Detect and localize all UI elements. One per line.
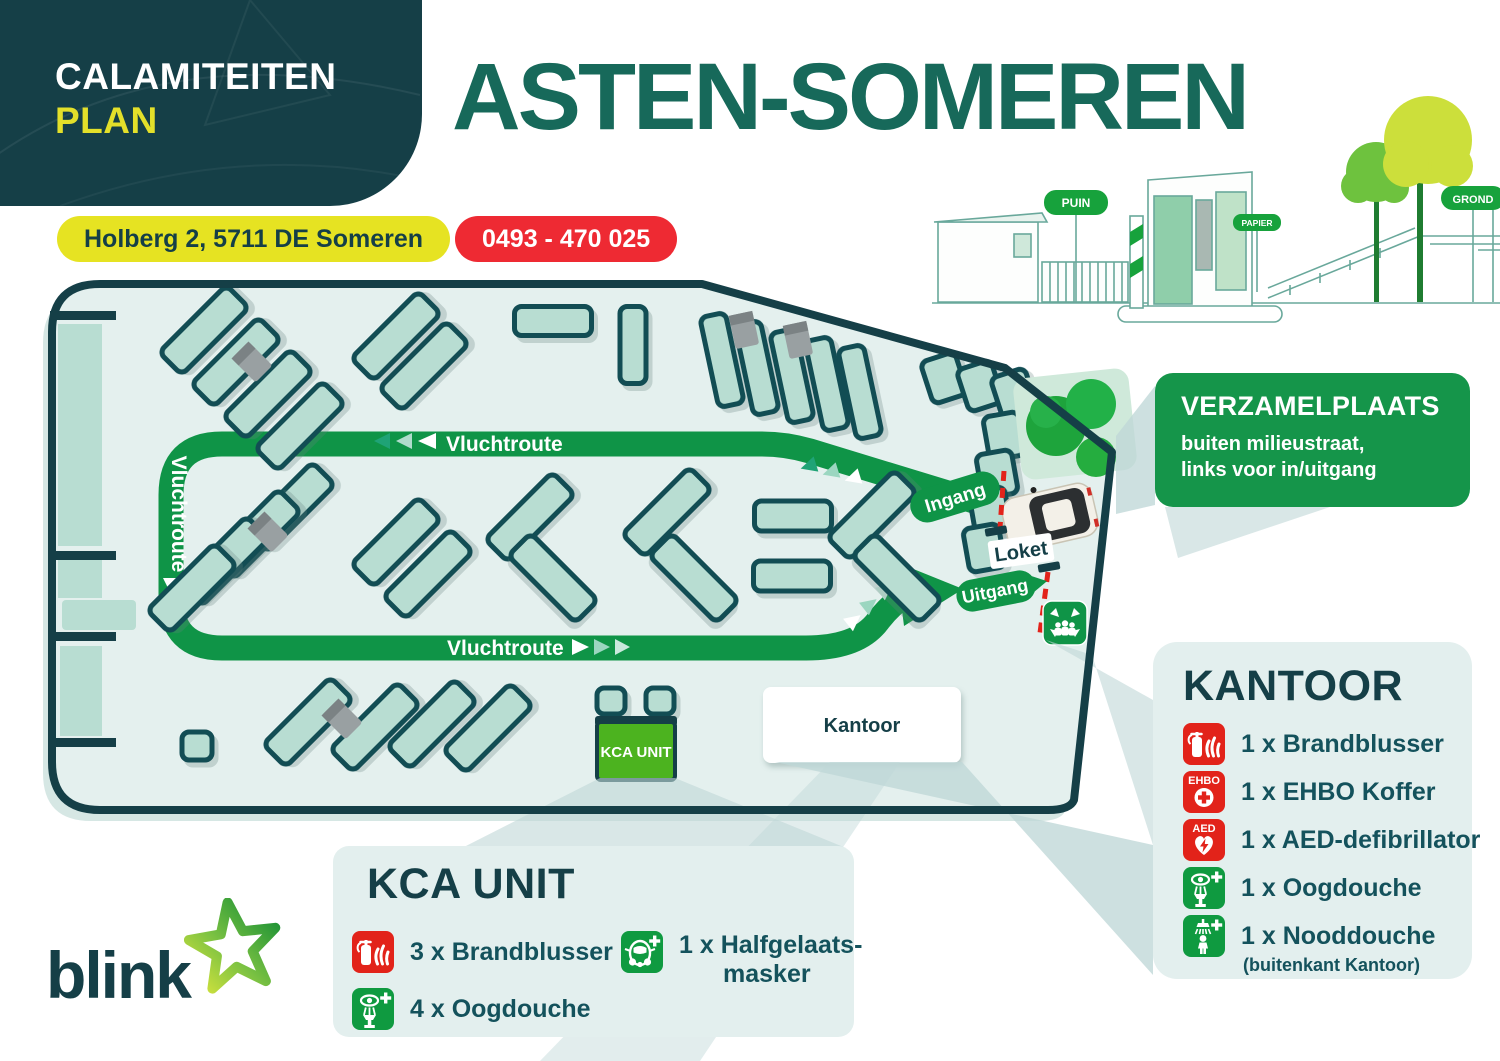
phone-badge: 0493 - 470 025 — [455, 216, 677, 262]
waste-container — [754, 561, 831, 591]
blink-star-icon — [184, 898, 284, 998]
header-banner: CALAMITEITEN PLAN — [0, 0, 422, 206]
header-title-line2: PLAN — [55, 100, 158, 142]
equipment-row: 4 x Oogdouche — [352, 988, 591, 1030]
calamity-plan-poster: { "header": { "line1": "CALAMITEITEN", "… — [0, 0, 1500, 1061]
waste-container — [620, 307, 646, 384]
equipment-label: 1 x Halfgelaats- — [679, 931, 862, 959]
blink-logo: blink — [46, 942, 284, 1008]
aed-icon: AED — [1183, 819, 1225, 861]
verzamelplaats-panel: VERZAMELPLAATS buiten milieustraat, link… — [1155, 373, 1470, 507]
waste-container — [755, 501, 832, 531]
half-mask-icon — [621, 931, 663, 973]
equipment-label: 3 x Brandblusser — [410, 938, 613, 967]
equipment-row: 1 x Brandblusser — [1183, 723, 1472, 765]
equipment-label: 1 x Brandblusser — [1241, 730, 1444, 759]
kca-unit-building-label: KCA UNIT — [600, 744, 671, 761]
equipment-note: (buitenkant Kantoor) — [1243, 955, 1472, 976]
svg-text:PAPIER: PAPIER — [1241, 218, 1272, 228]
kca-unit-panel: KCA UNIT 3 x Brandblusser 4 x Oogdouche — [333, 846, 854, 1037]
svg-text:GROND: GROND — [1453, 194, 1494, 206]
equipment-label: 1 x Oogdouche — [1241, 874, 1422, 903]
fire-extinguisher-icon — [1183, 723, 1225, 765]
svg-text:AED: AED — [1192, 823, 1215, 835]
ehbo-first-aid-icon: EHBO — [1183, 771, 1225, 813]
equipment-row: 1 x Nooddouche — [1183, 915, 1472, 957]
equipment-label: 1 x AED-defibrillator — [1241, 826, 1480, 855]
eyewash-icon — [352, 988, 394, 1030]
equipment-label-line2: masker — [679, 960, 862, 989]
equipment-row: 1 x Halfgelaats- masker — [621, 931, 862, 989]
kantoor-panel: KANTOOR 1 x Brandblusser EHBO 1 x EHBO K… — [1153, 642, 1472, 979]
address-badge: Holberg 2, 5711 DE Someren — [57, 216, 450, 262]
equipment-row: 3 x Brandblusser — [352, 931, 613, 973]
striped-post — [1130, 216, 1143, 308]
equipment-row: AED 1 x AED-defibrillator — [1183, 819, 1472, 861]
kantoor-panel-title: KANTOOR — [1183, 662, 1472, 711]
verzamelplaats-line1: buiten milieustraat, — [1181, 433, 1364, 455]
fire-extinguisher-icon — [352, 931, 394, 973]
waste-container — [515, 307, 592, 336]
waste-container — [646, 688, 674, 714]
kca-panel-title: KCA UNIT — [367, 860, 854, 909]
waste-container — [182, 732, 212, 760]
eyewash-icon — [1183, 867, 1225, 909]
equipment-label: 4 x Oogdouche — [410, 995, 591, 1024]
page-title: ASTEN-SOMEREN — [452, 50, 1247, 145]
route-label-bottom: Vluchtroute — [447, 637, 564, 660]
svg-text:PUIN: PUIN — [1062, 196, 1091, 210]
equipment-row: 1 x Oogdouche — [1183, 867, 1472, 909]
route-label-left: Vluchtroute — [167, 456, 190, 573]
verzamelplaats-line2: links voor in/uitgang — [1181, 459, 1377, 481]
equipment-row: EHBO 1 x EHBO Koffer — [1183, 771, 1472, 813]
waste-container — [597, 688, 625, 714]
verzamelplaats-title: VERZAMELPLAATS — [1181, 391, 1444, 422]
equipment-label: 1 x EHBO Koffer — [1241, 778, 1435, 807]
route-label-top: Vluchtroute — [446, 433, 563, 456]
assembly-point-icon — [1043, 601, 1087, 645]
equipment-label: 1 x Nooddouche — [1241, 922, 1435, 951]
blink-wordmark: blink — [46, 942, 190, 1008]
svg-text:EHBO: EHBO — [1188, 775, 1220, 787]
header-title-line1: CALAMITEITEN — [55, 56, 336, 98]
kantoor-building-label: Kantoor — [824, 715, 901, 737]
emergency-shower-icon — [1183, 915, 1225, 957]
